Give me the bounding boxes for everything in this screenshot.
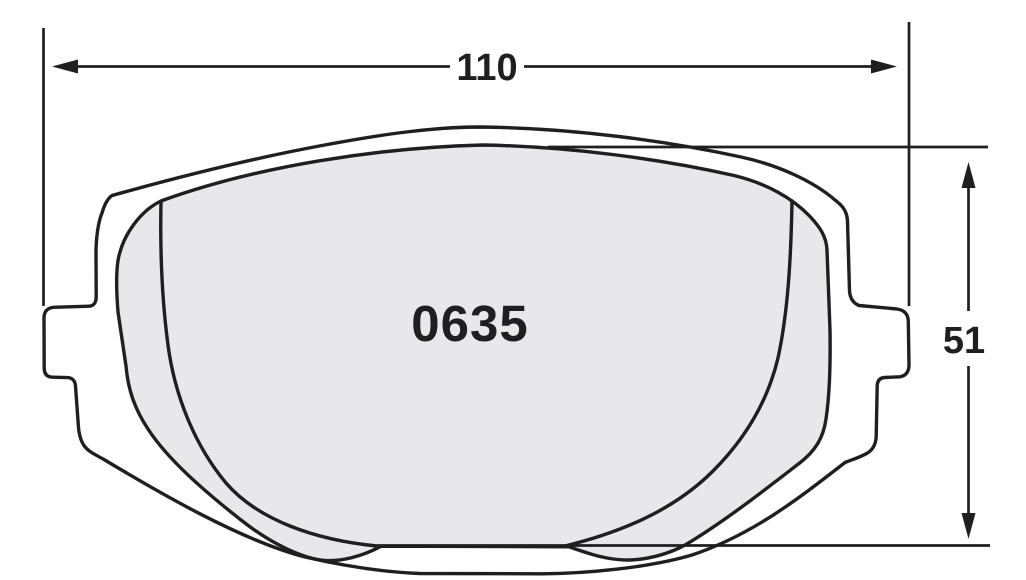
width-dimension-label: 110 — [456, 47, 517, 89]
arrow-right-icon — [871, 60, 897, 74]
part-number-label: 0635 — [411, 295, 528, 352]
arrow-down-icon — [962, 513, 976, 539]
arrow-up-icon — [962, 162, 976, 188]
arrow-left-icon — [52, 60, 78, 74]
brake-pad-technical-drawing: 110 51 0635 — [0, 0, 1026, 580]
height-dimension-label: 51 — [943, 320, 985, 362]
friction-material-outline — [117, 145, 830, 561]
drawing-svg: 110 51 0635 — [0, 0, 1026, 580]
